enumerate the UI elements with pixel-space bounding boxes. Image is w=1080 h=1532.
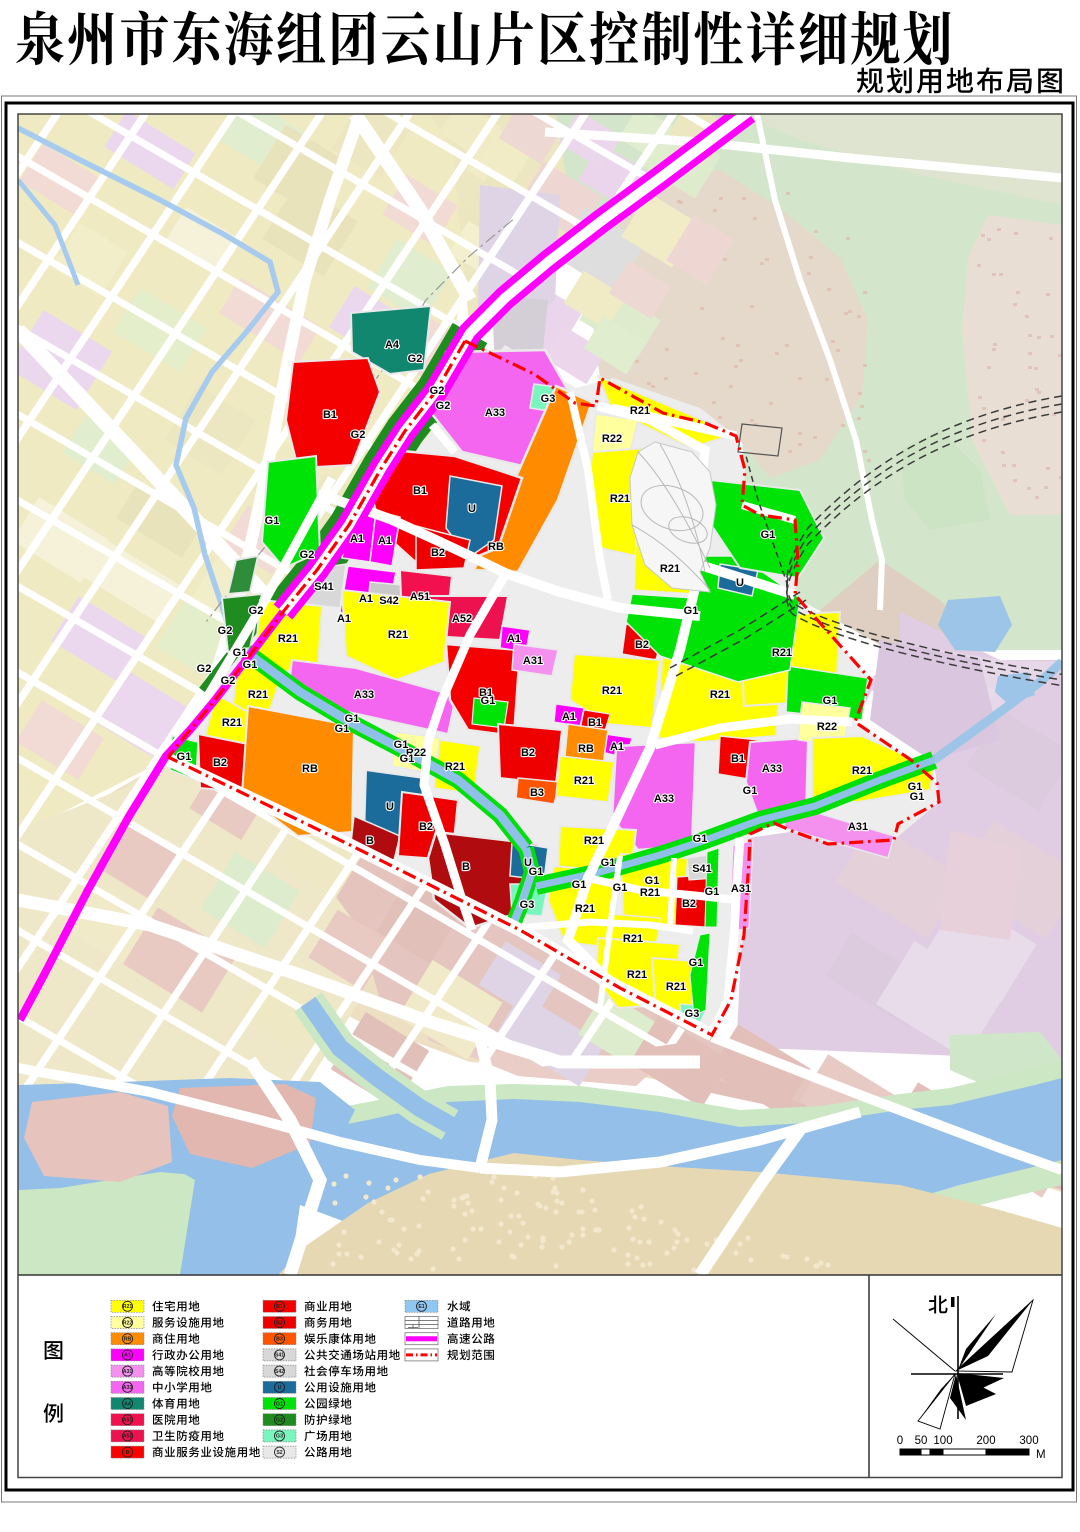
svg-text:R21: R21 bbox=[772, 647, 792, 659]
svg-text:G2: G2 bbox=[351, 429, 366, 441]
svg-text:200: 200 bbox=[976, 1435, 995, 1447]
svg-text:B1: B1 bbox=[323, 409, 337, 421]
svg-text:G2: G2 bbox=[408, 353, 423, 365]
svg-text:B1: B1 bbox=[413, 485, 427, 497]
svg-text:G1: G1 bbox=[645, 875, 660, 887]
svg-text:B3: B3 bbox=[276, 1337, 283, 1343]
svg-text:A1: A1 bbox=[124, 1353, 131, 1359]
svg-text:S41: S41 bbox=[275, 1353, 284, 1359]
svg-text:B2: B2 bbox=[276, 1320, 283, 1326]
svg-text:A31: A31 bbox=[731, 883, 751, 895]
svg-text:G2: G2 bbox=[436, 400, 451, 412]
svg-text:E1: E1 bbox=[418, 1304, 424, 1310]
svg-text:A1: A1 bbox=[378, 535, 392, 547]
svg-text:S42: S42 bbox=[379, 595, 399, 607]
svg-text:A33: A33 bbox=[123, 1385, 133, 1391]
svg-text:G1: G1 bbox=[335, 723, 350, 735]
svg-text:G1: G1 bbox=[693, 833, 708, 845]
svg-text:RB: RB bbox=[124, 1337, 132, 1343]
svg-text:A31: A31 bbox=[848, 821, 868, 833]
svg-text:A51: A51 bbox=[410, 591, 430, 603]
svg-text:A4: A4 bbox=[124, 1401, 131, 1407]
svg-text:A33: A33 bbox=[485, 407, 505, 419]
svg-text:G2: G2 bbox=[276, 1418, 283, 1424]
svg-text:G1: G1 bbox=[243, 659, 258, 671]
svg-text:R21: R21 bbox=[602, 685, 622, 697]
svg-text:R22: R22 bbox=[817, 721, 837, 733]
svg-text:A1: A1 bbox=[562, 711, 576, 723]
svg-text:B3: B3 bbox=[530, 787, 544, 799]
svg-text:A31: A31 bbox=[523, 655, 543, 667]
svg-text:G3: G3 bbox=[276, 1434, 283, 1440]
svg-text:B2: B2 bbox=[419, 821, 433, 833]
svg-text:B2: B2 bbox=[213, 757, 227, 769]
svg-text:R21: R21 bbox=[852, 765, 872, 777]
svg-text:A4: A4 bbox=[385, 339, 400, 351]
svg-text:50: 50 bbox=[915, 1435, 928, 1447]
svg-text:R21: R21 bbox=[610, 493, 630, 505]
svg-text:G1: G1 bbox=[910, 791, 925, 803]
svg-text:G1: G1 bbox=[572, 879, 587, 891]
svg-text:M: M bbox=[1036, 1449, 1046, 1461]
svg-text:R21: R21 bbox=[222, 717, 242, 729]
svg-text:B2: B2 bbox=[635, 639, 649, 651]
svg-text:G1: G1 bbox=[265, 515, 280, 527]
svg-text:R21: R21 bbox=[627, 969, 647, 981]
svg-text:100: 100 bbox=[933, 1435, 952, 1447]
svg-text:G1: G1 bbox=[689, 957, 704, 969]
svg-text:G2: G2 bbox=[218, 625, 233, 637]
svg-text:R21: R21 bbox=[248, 689, 268, 701]
svg-text:R21: R21 bbox=[630, 405, 650, 417]
svg-text:S41: S41 bbox=[314, 581, 334, 593]
svg-text:B1: B1 bbox=[276, 1304, 283, 1310]
svg-text:R22: R22 bbox=[602, 433, 622, 445]
svg-text:300: 300 bbox=[1019, 1435, 1038, 1447]
svg-text:R21: R21 bbox=[445, 761, 465, 773]
svg-text:G1: G1 bbox=[400, 753, 415, 765]
svg-text:A51: A51 bbox=[123, 1418, 133, 1424]
svg-text:S41: S41 bbox=[692, 863, 712, 875]
svg-text:U: U bbox=[386, 801, 394, 813]
svg-text:G1: G1 bbox=[276, 1401, 283, 1407]
svg-text:G1: G1 bbox=[601, 857, 616, 869]
svg-text:G3: G3 bbox=[685, 1008, 700, 1020]
svg-text:B1: B1 bbox=[731, 753, 745, 765]
svg-text:G1: G1 bbox=[529, 866, 544, 878]
svg-text:R21: R21 bbox=[123, 1304, 133, 1310]
svg-text:A52: A52 bbox=[452, 613, 472, 625]
svg-text:A31: A31 bbox=[123, 1369, 133, 1375]
svg-text:A1: A1 bbox=[350, 533, 364, 545]
svg-text:G2: G2 bbox=[221, 675, 236, 687]
svg-text:G3: G3 bbox=[541, 393, 556, 405]
svg-text:A1: A1 bbox=[507, 633, 521, 645]
svg-text:B: B bbox=[366, 835, 374, 847]
svg-text:R21: R21 bbox=[388, 629, 408, 641]
svg-text:G1: G1 bbox=[481, 695, 496, 707]
svg-text:S2: S2 bbox=[276, 1450, 282, 1456]
svg-text:A1: A1 bbox=[610, 741, 624, 753]
svg-text:G1: G1 bbox=[684, 605, 699, 617]
svg-text:R21: R21 bbox=[710, 689, 730, 701]
svg-text:R21: R21 bbox=[574, 775, 594, 787]
svg-text:A33: A33 bbox=[762, 763, 782, 775]
svg-text:G1: G1 bbox=[394, 739, 409, 751]
svg-text:U: U bbox=[278, 1385, 282, 1391]
svg-text:RB: RB bbox=[578, 743, 594, 755]
svg-text:B2: B2 bbox=[431, 547, 445, 559]
svg-text:G1: G1 bbox=[761, 529, 776, 541]
svg-text:A33: A33 bbox=[354, 689, 374, 701]
svg-text:G1: G1 bbox=[177, 751, 192, 763]
svg-text:B: B bbox=[462, 861, 470, 873]
svg-text:U: U bbox=[468, 503, 476, 515]
svg-text:B: B bbox=[126, 1450, 130, 1456]
svg-text:R21: R21 bbox=[666, 981, 686, 993]
svg-text:R21: R21 bbox=[278, 633, 298, 645]
svg-text:A33: A33 bbox=[654, 793, 674, 805]
svg-text:B2: B2 bbox=[682, 898, 696, 910]
svg-text:R21: R21 bbox=[623, 933, 643, 945]
svg-text:G1: G1 bbox=[705, 886, 720, 898]
svg-text:RB: RB bbox=[302, 763, 318, 775]
svg-text:G2: G2 bbox=[249, 605, 264, 617]
svg-text:G2: G2 bbox=[300, 549, 315, 561]
svg-text:G1: G1 bbox=[233, 647, 248, 659]
svg-text:S42: S42 bbox=[275, 1369, 284, 1375]
svg-text:B1: B1 bbox=[588, 717, 602, 729]
svg-text:A1: A1 bbox=[359, 593, 373, 605]
svg-text:B2: B2 bbox=[521, 747, 535, 759]
svg-text:RB: RB bbox=[488, 541, 504, 553]
svg-text:G1: G1 bbox=[613, 882, 628, 894]
svg-text:G2: G2 bbox=[430, 385, 445, 397]
svg-text:A52: A52 bbox=[123, 1434, 133, 1440]
svg-text:G3: G3 bbox=[520, 899, 535, 911]
svg-text:A1: A1 bbox=[337, 613, 351, 625]
svg-text:R21: R21 bbox=[660, 563, 680, 575]
svg-text:G1: G1 bbox=[743, 785, 758, 797]
svg-text:G2: G2 bbox=[197, 663, 212, 675]
svg-text:R21: R21 bbox=[575, 903, 595, 915]
svg-text:U: U bbox=[736, 577, 744, 589]
svg-text:R21: R21 bbox=[640, 887, 660, 899]
svg-text:R21: R21 bbox=[584, 835, 604, 847]
svg-text:R22: R22 bbox=[123, 1320, 133, 1326]
svg-text:G1: G1 bbox=[823, 695, 838, 707]
svg-text:0: 0 bbox=[897, 1435, 903, 1447]
